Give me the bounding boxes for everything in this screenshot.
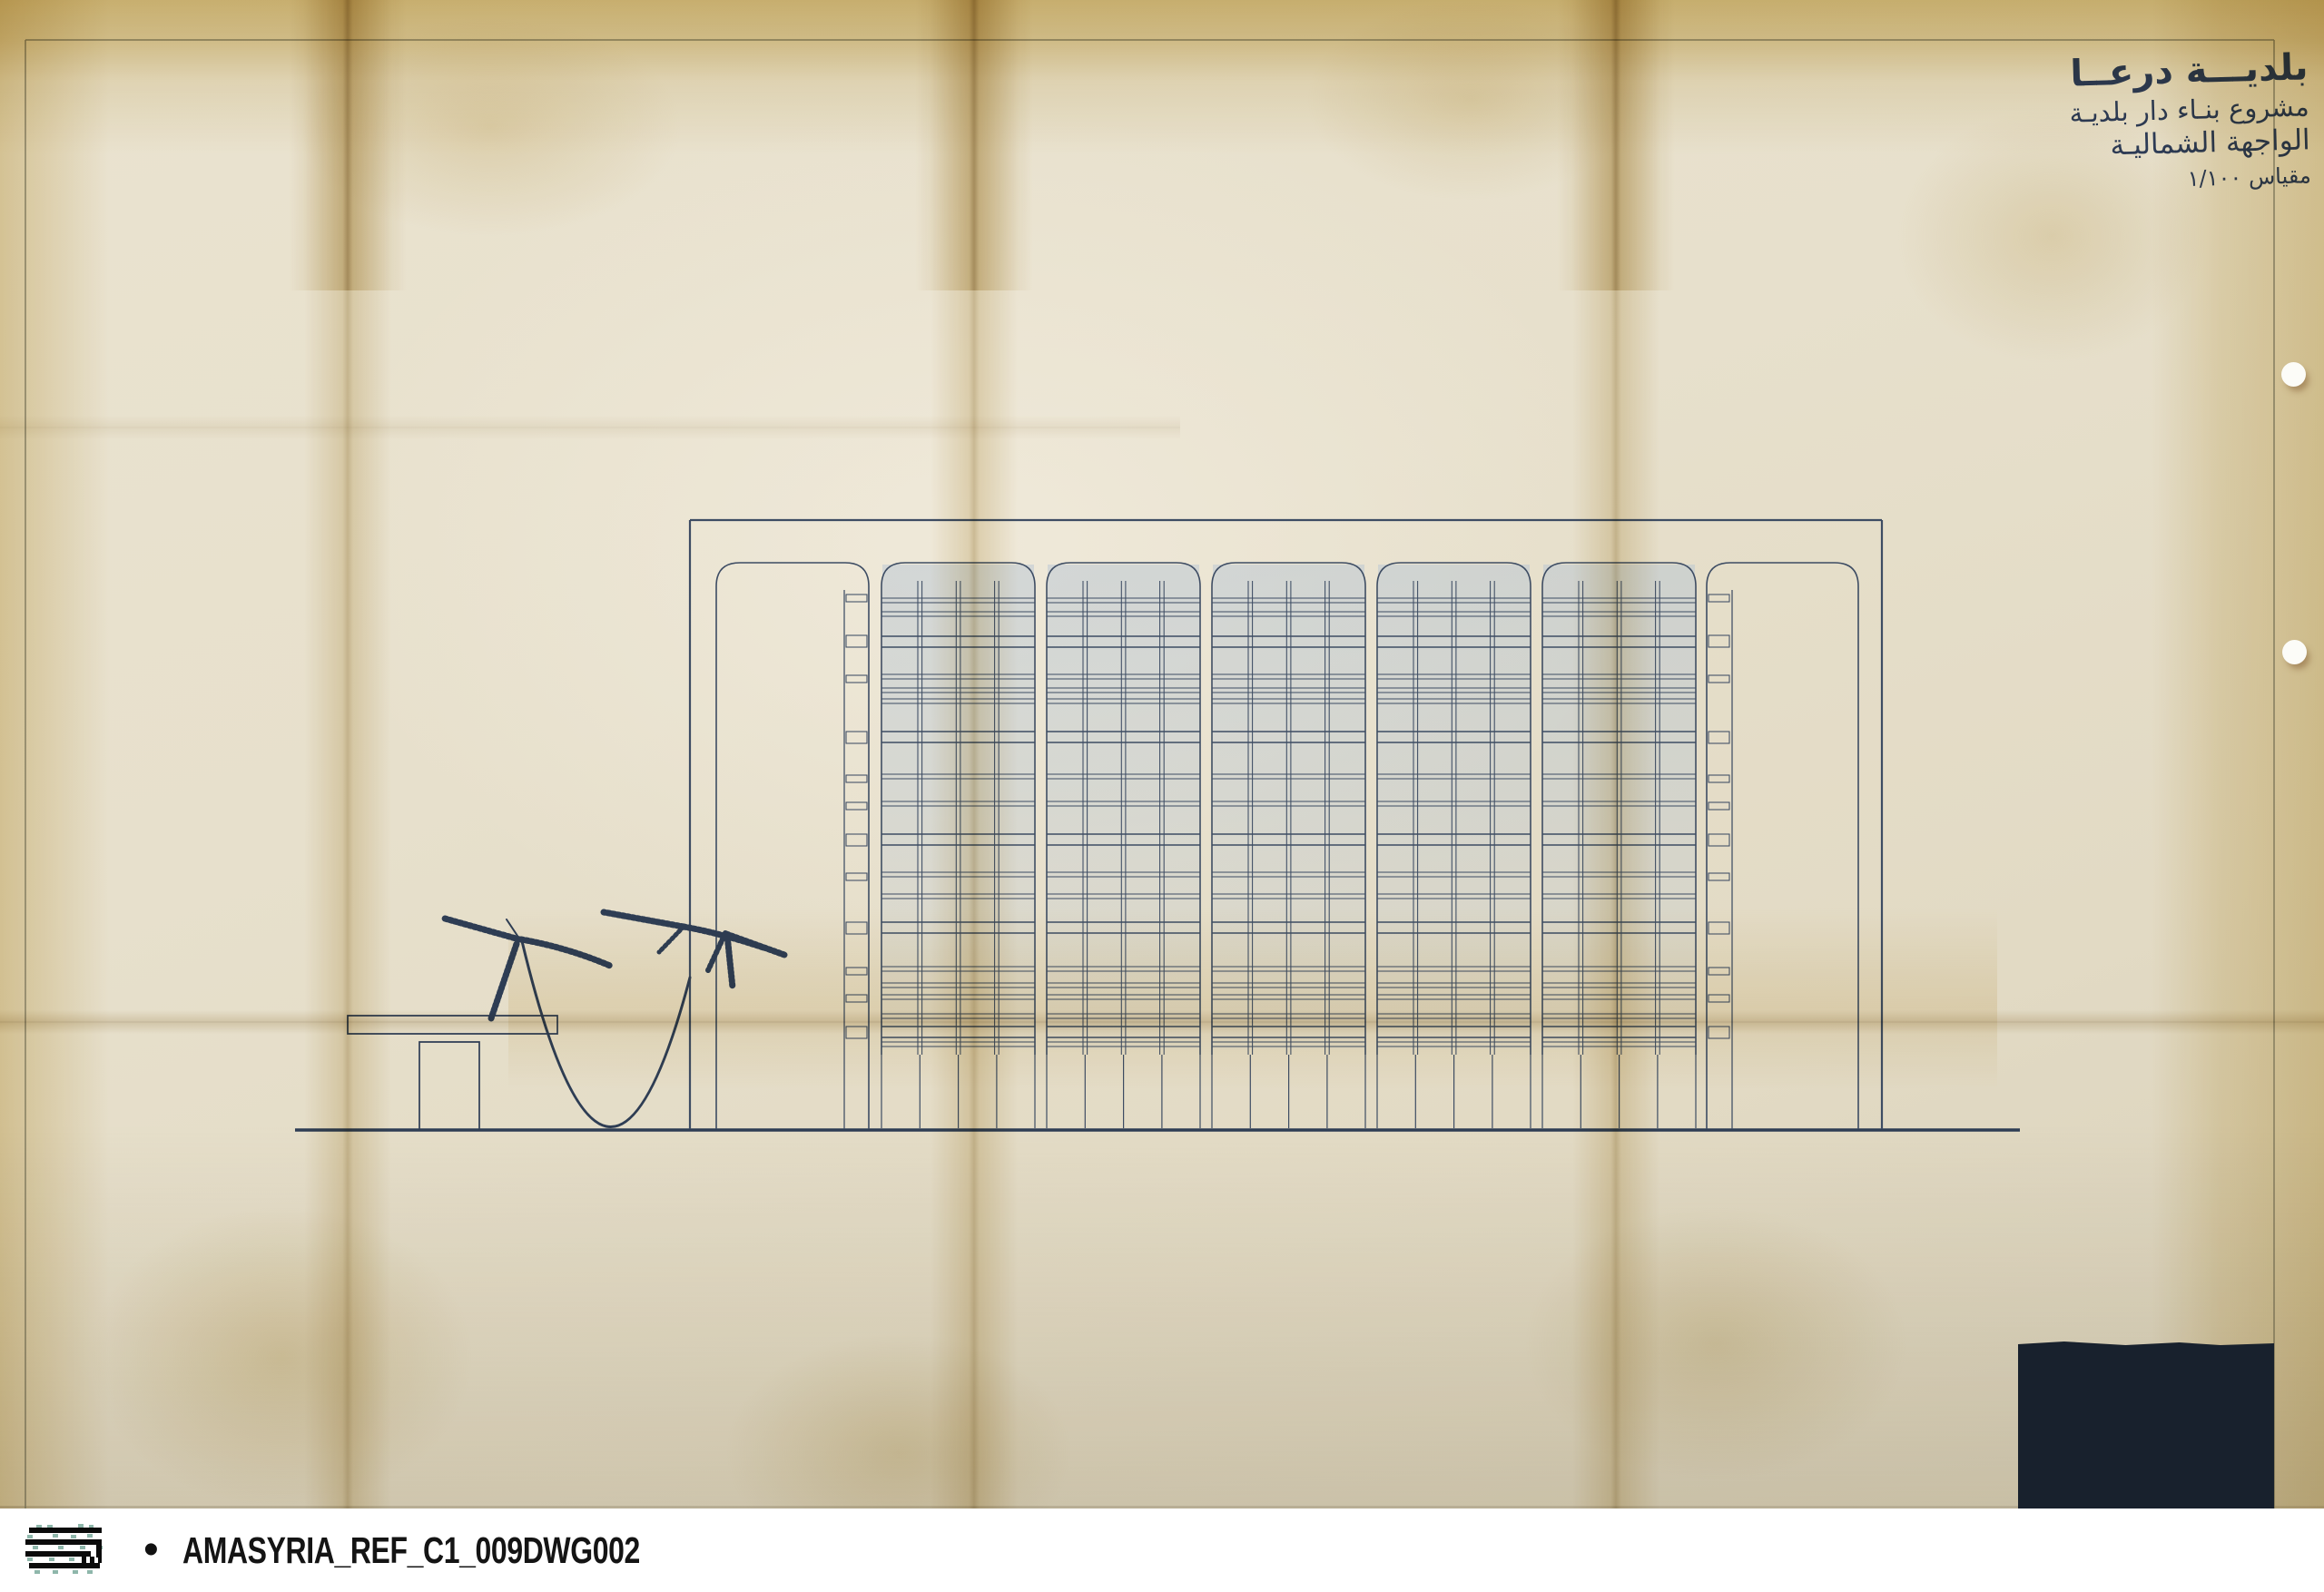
foreground-sketch-palms-and-arch	[348, 912, 784, 1128]
title-block: بلديـــة درعــا مشروع بنـاء دار بلديـة ا…	[1999, 46, 2311, 197]
reference-label: AMASYRIA_REF_C1_009DWG002	[182, 1529, 640, 1572]
archive-logo-icon	[25, 1524, 103, 1577]
title-municipality: بلديـــة درعــا	[1999, 46, 2309, 98]
paper-sheet: بلديـــة درعــا مشروع بنـاء دار بلديـة ا…	[0, 0, 2324, 1508]
title-facade: الواجهة الشماليـة	[2001, 124, 2310, 166]
punch-hole-top	[2281, 362, 2306, 387]
building-elevation	[690, 520, 1882, 1129]
redaction-rectangle	[2018, 1341, 2274, 1508]
punch-hole-bottom	[2282, 640, 2307, 664]
scanned-drawing-page: بلديـــة درعــا مشروع بنـاء دار بلديـة ا…	[0, 0, 2324, 1592]
list-bullet: •	[143, 1528, 159, 1572]
footer-bar: • AMASYRIA_REF_C1_009DWG002	[0, 1508, 2324, 1592]
elevation-drawing	[0, 0, 2324, 1508]
